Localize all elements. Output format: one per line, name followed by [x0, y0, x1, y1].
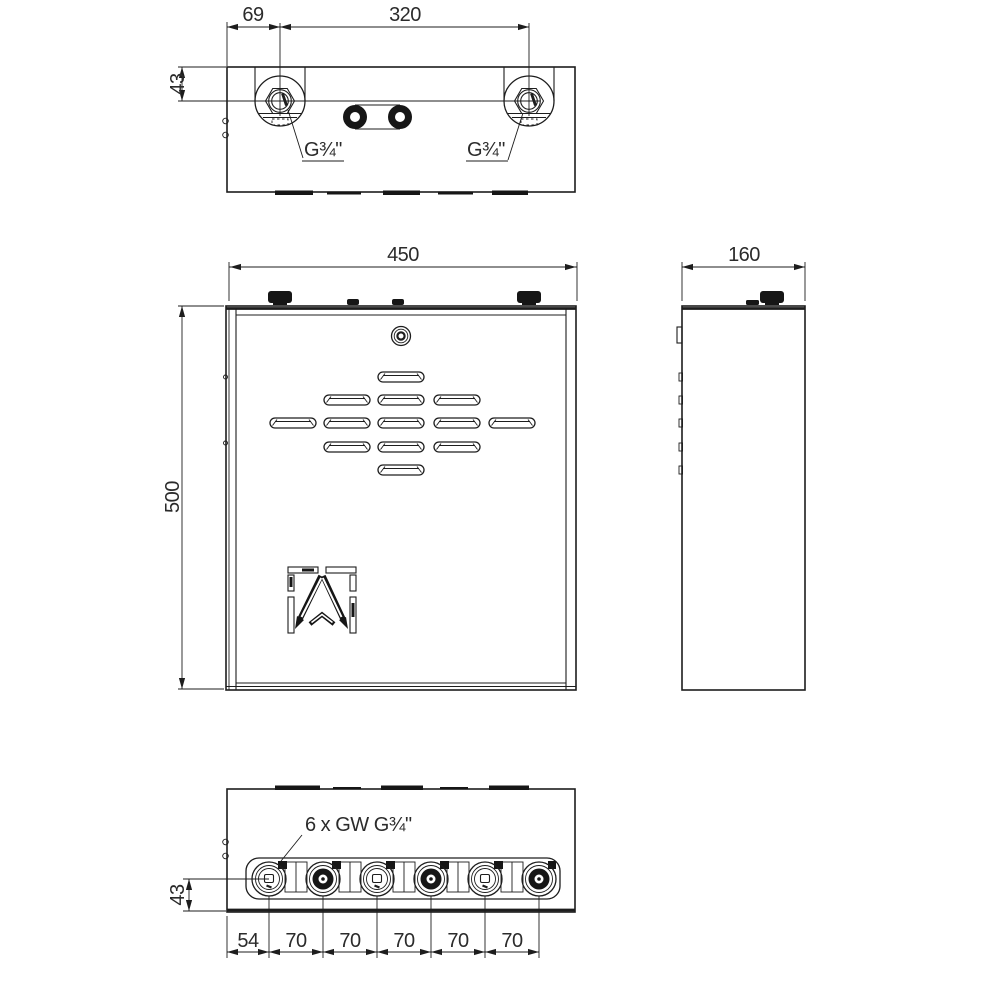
- connector-rail: [246, 858, 560, 899]
- dim-side-depth: 160: [728, 244, 760, 266]
- dim-spacing-1: 70: [285, 930, 307, 952]
- bottom-thread-label: 6 x GW G¾": [305, 814, 412, 836]
- dim-spacing-0: 54: [237, 930, 259, 952]
- dim-front-height: 500: [162, 481, 184, 513]
- front-height-dimension: 500: [162, 306, 224, 689]
- union-connector-4: [414, 862, 448, 896]
- dim-spacing-5: 70: [501, 930, 523, 952]
- dim-spacing-4: 70: [447, 930, 469, 952]
- dim-spacing-2: 70: [339, 930, 361, 952]
- top-knob-left: [268, 291, 292, 305]
- front-view: 450 500: [162, 244, 577, 690]
- bottom-view: 6 x GW G¾" 43 54: [167, 786, 575, 959]
- vent-slots: [270, 372, 535, 475]
- side-knob: [760, 291, 784, 305]
- front-outline: [226, 306, 576, 690]
- top-dimensions: 69 320 43: [167, 4, 529, 116]
- technical-drawing-canvas: 69 320 43 G¾" G¾" 450: [0, 0, 1000, 1000]
- top-tab: [347, 299, 359, 305]
- dim-top-offset: 69: [242, 4, 264, 26]
- brand-logo: [288, 567, 356, 633]
- keyhole-slot: [343, 105, 412, 129]
- door-lock: [392, 327, 411, 346]
- top-knob-right: [517, 291, 541, 305]
- bottom-thread-callout: 6 x GW G¾": [281, 814, 412, 861]
- bottom-height-dimension: 43: [167, 879, 269, 911]
- bottom-spacing-dimensions: 54 70 70 70 70 70: [227, 896, 539, 958]
- top-view: 69 320 43 G¾" G¾": [167, 4, 575, 195]
- union-connector-5: [468, 862, 502, 896]
- bottom-rear-tabs: [275, 786, 529, 791]
- union-connector-2: [306, 862, 340, 896]
- side-depth-dimension: 160: [682, 244, 805, 301]
- drawing-svg: 69 320 43 G¾" G¾" 450: [0, 0, 1000, 1000]
- top-view-outline: [227, 67, 575, 192]
- top-tab: [392, 299, 404, 305]
- side-tab: [746, 300, 759, 305]
- dim-front-width: 450: [387, 244, 419, 266]
- dim-spacing-3: 70: [393, 930, 415, 952]
- side-view: 160: [677, 244, 805, 690]
- dim-bottom-height: 43: [167, 884, 189, 906]
- dim-top-spacing: 320: [389, 4, 421, 26]
- thread-label-right: G¾": [467, 139, 505, 161]
- side-outline: [682, 306, 805, 690]
- dim-top-height: 43: [167, 73, 189, 95]
- bottom-outline: [227, 789, 575, 912]
- union-connector-6: [522, 862, 556, 896]
- union-connector-3: [360, 862, 394, 896]
- thread-label-left: G¾": [304, 139, 342, 161]
